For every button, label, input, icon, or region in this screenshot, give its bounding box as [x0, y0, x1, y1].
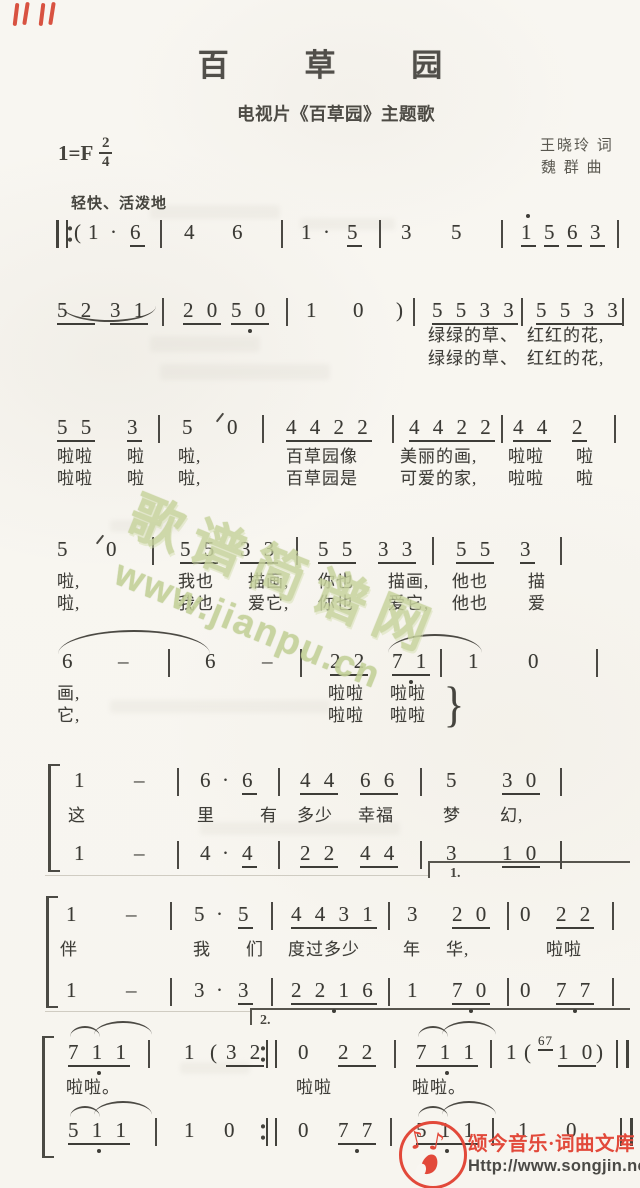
lyric-text: 伴 — [60, 940, 78, 960]
tie — [94, 1021, 152, 1035]
lyric-text: 美丽的画, — [400, 447, 477, 467]
barline-bar — [420, 841, 422, 869]
score: 1. 2. (1·6461·53515635 23 12 05 010)5 5 … — [0, 0, 640, 1188]
note-token: 5 — [451, 222, 466, 243]
note-token: – — [134, 843, 149, 864]
note-token: 2 2 — [338, 1042, 376, 1067]
note-token: 1 — [66, 904, 81, 925]
lyric-text: 啦啦 — [57, 447, 93, 467]
tie — [442, 1021, 496, 1035]
note-token: – — [118, 651, 133, 672]
note-token: 4 4 3 1 — [291, 904, 377, 929]
publisher-name: 颂今音乐·词曲文库 — [468, 1127, 635, 1156]
lyric-text: 绿绿的草、 — [428, 349, 518, 369]
lyric-text: 啦啦 — [390, 684, 426, 704]
note-token: ( — [524, 1042, 535, 1063]
note-token: 3 — [446, 843, 461, 864]
note-token: 5 — [194, 904, 209, 925]
note-token: 67 — [538, 1034, 553, 1051]
note-token: 6 — [62, 651, 77, 672]
barline-bar — [271, 902, 273, 930]
note-token: · — [216, 980, 227, 1001]
note-token: ( — [210, 1042, 221, 1063]
note-token: 1 0 — [502, 843, 540, 868]
note-token: 5 5 — [456, 539, 494, 564]
slide-mark — [216, 413, 224, 423]
note-token: · — [323, 222, 334, 243]
note-token: ) — [596, 1042, 607, 1063]
note-token: 1 — [184, 1042, 199, 1063]
note-token: 2 2 — [556, 904, 594, 929]
music-note-icon: ♪ — [406, 1125, 428, 1156]
note-token: 5 5 — [180, 539, 218, 564]
note-token: 7 1 1 — [68, 1042, 130, 1067]
note-token: 6 — [232, 222, 247, 243]
note-token: 5 — [182, 417, 197, 438]
music-note-icon: ♪ — [427, 1127, 447, 1157]
barline-bar — [168, 649, 170, 677]
note-token: · — [110, 222, 121, 243]
barline-bar — [155, 1118, 157, 1146]
lyric-text: 我也 — [178, 572, 214, 592]
lyric-text: 啦 — [576, 469, 594, 489]
note-token: 0 — [298, 1120, 313, 1141]
barline-bar — [560, 841, 562, 869]
note-token: 5 5 — [318, 539, 356, 564]
lyric-text: 你也 — [318, 594, 354, 614]
note-token: 7 0 — [452, 980, 490, 1005]
barline-bar — [281, 220, 283, 248]
lyric-text: 你也 — [318, 572, 354, 592]
lyric-text: 他也 — [452, 594, 488, 614]
note-token: 1 — [306, 300, 321, 321]
barline-bar — [521, 298, 523, 326]
barline-bar — [413, 298, 415, 326]
note-token: 5 5 — [57, 417, 95, 442]
note-token: – — [126, 980, 141, 1001]
note-token: 1 0 — [558, 1042, 596, 1067]
note-token: 6 — [567, 222, 582, 247]
note-token: 4 — [200, 843, 215, 864]
barline-repend — [266, 1040, 277, 1068]
barline-bar — [170, 978, 172, 1006]
note-token: 4 — [184, 222, 199, 243]
barline-bar — [490, 1040, 492, 1068]
lyric-text: 啦啦 — [390, 706, 426, 726]
note-token: 0 — [298, 1042, 313, 1063]
barline-bar — [617, 220, 619, 248]
page-crease — [45, 875, 430, 876]
volta-1-label: 1. — [450, 866, 461, 882]
note-token: 6 — [130, 222, 145, 247]
lyric-text: 有 — [260, 806, 278, 826]
page-crease — [45, 1011, 250, 1012]
lyric-text: 绿绿的草、 — [428, 326, 518, 346]
barline-bar — [278, 768, 280, 796]
note-token: 4 4 2 2 — [286, 417, 372, 442]
lyric-text: 百草园像 — [286, 447, 358, 467]
note-token: – — [126, 904, 141, 925]
note-token: – — [262, 651, 277, 672]
lyric-text: 里 — [197, 806, 215, 826]
lyric-text: 啦, — [57, 594, 80, 614]
note-token: 7 1 — [392, 651, 430, 676]
lyric-text: 我也 — [178, 594, 214, 614]
note-token: 4 — [242, 843, 257, 868]
lyric-text: 可爱的家, — [400, 469, 477, 489]
note-token: 5 2 — [57, 300, 95, 325]
lyric-text: 它, — [57, 706, 80, 726]
note-token: 2 2 1 6 — [291, 980, 377, 1005]
barline-bar — [177, 768, 179, 796]
note-token: 3 3 — [378, 539, 416, 564]
lyric-text: 啦啦 — [546, 940, 582, 960]
tie — [58, 630, 210, 654]
note-token: 1 — [506, 1042, 521, 1063]
note-token: 1 — [468, 651, 483, 672]
note-token: 3 — [401, 222, 416, 243]
note-token: 1 — [407, 980, 422, 1001]
lyric-text: 这 — [68, 806, 86, 826]
note-token: 1 — [521, 222, 536, 247]
note-token: 3 — [238, 980, 253, 1005]
lyric-text: 啦, — [178, 447, 201, 467]
note-token: 3 — [127, 417, 142, 442]
publisher-logo: ♪ ♪ — [399, 1121, 467, 1188]
note-token: 0 — [520, 904, 535, 925]
note-token: · — [222, 843, 233, 864]
note-token: 7 7 — [338, 1120, 376, 1145]
barline-bar — [560, 768, 562, 796]
note-token: · — [216, 904, 227, 925]
lyric-text: 画, — [57, 684, 80, 704]
barline-bar — [622, 298, 624, 326]
note-token: 1 — [66, 980, 81, 1001]
note-token: 2 0 — [183, 300, 221, 325]
lyric-text: 啦, — [57, 572, 80, 592]
lyric-text: 们 — [246, 940, 264, 960]
lyric-text: 华, — [446, 940, 469, 960]
note-token: 5 — [57, 539, 72, 560]
lyric-text: 幻, — [500, 806, 523, 826]
note-token: 4 4 — [300, 770, 338, 795]
note-token: 5 — [347, 222, 362, 247]
barline-bar — [177, 841, 179, 869]
note-token: · — [222, 770, 233, 791]
lyric-text: 年 — [403, 940, 421, 960]
note-token: 2 2 — [330, 651, 368, 676]
note-token: 2 2 — [300, 843, 338, 868]
barline-final — [616, 1040, 629, 1068]
note-token: 2 0 — [452, 904, 490, 929]
barline-bar — [440, 649, 442, 677]
barline-bar — [501, 415, 503, 443]
barline-bar — [162, 298, 164, 326]
lyric-text: 爱 — [528, 594, 546, 614]
barline-bar — [262, 415, 264, 443]
note-token: } — [444, 679, 464, 729]
lyric-text: 啦啦 — [328, 684, 364, 704]
note-token: 4 4 — [360, 843, 398, 868]
note-token: 3 — [407, 904, 422, 925]
note-token: 3 1 — [110, 300, 148, 325]
barline-bar — [432, 537, 434, 565]
lyric-text: 多少 — [297, 806, 333, 826]
note-token: – — [134, 770, 149, 791]
lyric-text: 红红的花, — [527, 326, 604, 346]
note-token: 4 4 — [513, 417, 551, 442]
volta-1-tick — [428, 861, 430, 878]
note-token: 0 — [227, 417, 242, 438]
voice-bracket — [48, 764, 60, 872]
lyric-text: 啦 — [127, 447, 145, 467]
lyric-text: 幸福 — [358, 806, 394, 826]
note-token: 5 5 3 3 — [536, 300, 622, 325]
note-token: 0 — [528, 651, 543, 672]
lyric-text: 啦啦 — [296, 1078, 332, 1098]
note-token: 0 — [353, 300, 368, 321]
barline-bar — [160, 220, 162, 248]
lyric-text: 红红的花, — [527, 349, 604, 369]
note-token: 2 — [572, 417, 587, 442]
volta-2-tick — [250, 1008, 252, 1025]
note-token: 3 — [590, 222, 605, 247]
note-token: 3 3 — [240, 539, 278, 564]
barline-bar — [392, 415, 394, 443]
note-token: 1 — [74, 843, 89, 864]
note-token: 7 7 — [556, 980, 594, 1005]
barline-bar — [170, 902, 172, 930]
lyric-text: 啦啦 — [508, 469, 544, 489]
lyric-text: 爱它, — [388, 594, 429, 614]
note-token: 5 — [446, 770, 461, 791]
barline-bar — [596, 649, 598, 677]
note-token: 0 — [520, 980, 535, 1001]
lyric-text: 他也 — [452, 572, 488, 592]
lyric-text: 啦啦。 — [412, 1078, 466, 1098]
barline-bar — [560, 537, 562, 565]
lyric-text: 啦啦。 — [66, 1078, 120, 1098]
note-token: 5 0 — [231, 300, 269, 325]
lyric-text: 描画, — [248, 572, 289, 592]
note-token: 1 — [301, 222, 316, 243]
note-token: 7 1 1 — [416, 1042, 478, 1067]
lyric-text: 爱它, — [248, 594, 289, 614]
lyric-text: 啦, — [178, 469, 201, 489]
barline-bar — [379, 220, 381, 248]
barline-bar — [390, 1118, 392, 1146]
barline-bar — [614, 415, 616, 443]
lyric-text: 啦 — [127, 469, 145, 489]
note-token: 4 4 2 2 — [409, 417, 495, 442]
barline-bar — [278, 841, 280, 869]
tie — [94, 1101, 152, 1115]
note-token: 3 2 — [226, 1042, 264, 1067]
note-token: 1 — [74, 770, 89, 791]
barline-bar — [612, 978, 614, 1006]
note-token: 0 — [106, 539, 121, 560]
lyric-text: 啦啦 — [508, 447, 544, 467]
lyric-text: 描 — [528, 572, 546, 592]
lyric-text: 啦 — [576, 447, 594, 467]
barline-bar — [152, 537, 154, 565]
barline-bar — [501, 220, 503, 248]
barline-bar — [394, 1040, 396, 1068]
note-token: 5 5 3 3 — [432, 300, 518, 325]
tie — [442, 1101, 496, 1115]
lyric-text: 百草园是 — [286, 469, 358, 489]
lyric-text: 啦啦 — [328, 706, 364, 726]
sheet-music-page: 百 草 园 电视片《百草园》主题歌 1=F 2 4 王晓玲 词 魏 群 曲 轻快… — [0, 0, 640, 1188]
note-token: 6 — [200, 770, 215, 791]
barline-bar — [296, 537, 298, 565]
lyric-text: 度过多少 — [288, 940, 360, 960]
barline-bar — [388, 978, 390, 1006]
note-token: ) — [396, 300, 407, 321]
note-token: 6 — [205, 651, 220, 672]
note-token: 1 — [88, 222, 103, 243]
note-token: 6 — [242, 770, 257, 795]
publisher-url: Http://www.songjin.net — [468, 1157, 640, 1176]
note-token: 3 — [194, 980, 209, 1001]
note-token: 5 1 1 — [68, 1120, 130, 1145]
barline-bar — [507, 978, 509, 1006]
lyric-text: 啦啦 — [57, 469, 93, 489]
barline-bar — [271, 978, 273, 1006]
barline-bar — [158, 415, 160, 443]
lyric-text: 梦 — [443, 806, 461, 826]
lyric-text: 描画, — [388, 572, 429, 592]
barline-bar — [300, 649, 302, 677]
voice-bracket — [46, 896, 58, 1008]
slide-mark — [96, 535, 104, 545]
note-token: 3 — [520, 539, 535, 564]
note-token: 1 — [184, 1120, 199, 1141]
lyric-text: 我 — [193, 940, 211, 960]
volta-2-label: 2. — [260, 1013, 271, 1029]
voice-bracket — [42, 1036, 54, 1158]
barline-bar — [388, 902, 390, 930]
barline-bar — [612, 902, 614, 930]
note-token: 5 — [544, 222, 559, 247]
note-token: 3 0 — [502, 770, 540, 795]
note-token: ( — [74, 222, 85, 243]
barline-bar — [148, 1040, 150, 1068]
barline-bar — [286, 298, 288, 326]
barline-repstart — [56, 220, 68, 248]
barline-bar — [507, 902, 509, 930]
note-token: 5 — [238, 904, 253, 929]
barline-repend — [266, 1118, 277, 1146]
barline-bar — [420, 768, 422, 796]
note-token: 6 6 — [360, 770, 398, 795]
note-token: 0 — [224, 1120, 239, 1141]
